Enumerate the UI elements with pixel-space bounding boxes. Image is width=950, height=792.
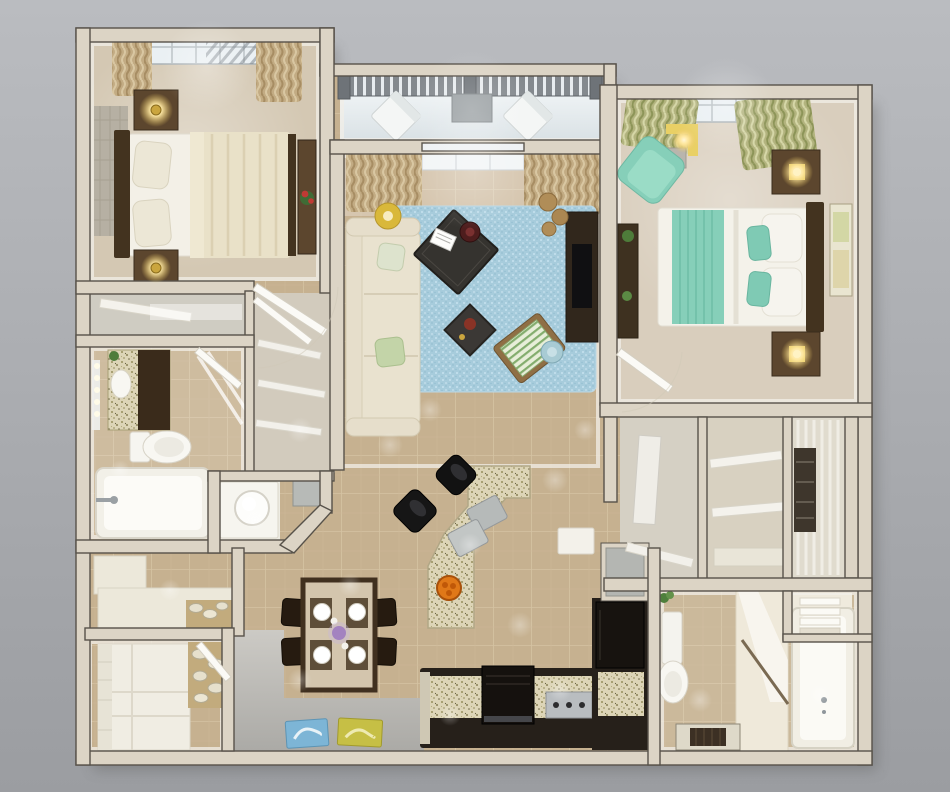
fruit-bowl <box>437 576 461 600</box>
footboard <box>288 134 296 256</box>
plate <box>349 604 366 621</box>
closet-shelf <box>714 548 784 566</box>
sofa <box>346 218 420 436</box>
headboard <box>806 202 824 332</box>
basket <box>542 222 556 236</box>
sink <box>111 370 131 398</box>
doormat-blue <box>285 719 329 749</box>
plant <box>622 230 634 242</box>
tv <box>572 244 592 308</box>
plate <box>314 604 331 621</box>
accent-pillow <box>746 225 771 261</box>
pillow <box>132 199 172 248</box>
floor-plan-render <box>0 0 950 792</box>
curtain-left <box>346 146 422 212</box>
curtain-left <box>112 34 152 96</box>
vanity-cabinet <box>138 350 170 430</box>
plant <box>622 291 632 301</box>
vanity <box>736 591 788 751</box>
pillow <box>376 242 405 271</box>
hanging-clothes <box>794 448 816 532</box>
stove <box>482 666 534 724</box>
pillow <box>132 140 173 190</box>
bathtub <box>96 468 210 538</box>
accent-pillow <box>746 271 771 307</box>
bed <box>114 130 296 258</box>
basket <box>539 193 557 211</box>
mirror <box>92 360 100 430</box>
headboard <box>114 130 130 258</box>
curtain-right <box>256 34 302 102</box>
plate <box>349 647 366 664</box>
pillow <box>374 336 405 367</box>
bed <box>658 202 824 332</box>
doormat-yellow <box>337 718 382 747</box>
toilet <box>130 431 191 463</box>
gray-mat <box>293 481 321 506</box>
refrigerator <box>596 602 644 668</box>
plant <box>109 351 119 361</box>
hall-shelf <box>558 528 594 554</box>
plate <box>314 647 331 664</box>
basket <box>552 209 568 225</box>
